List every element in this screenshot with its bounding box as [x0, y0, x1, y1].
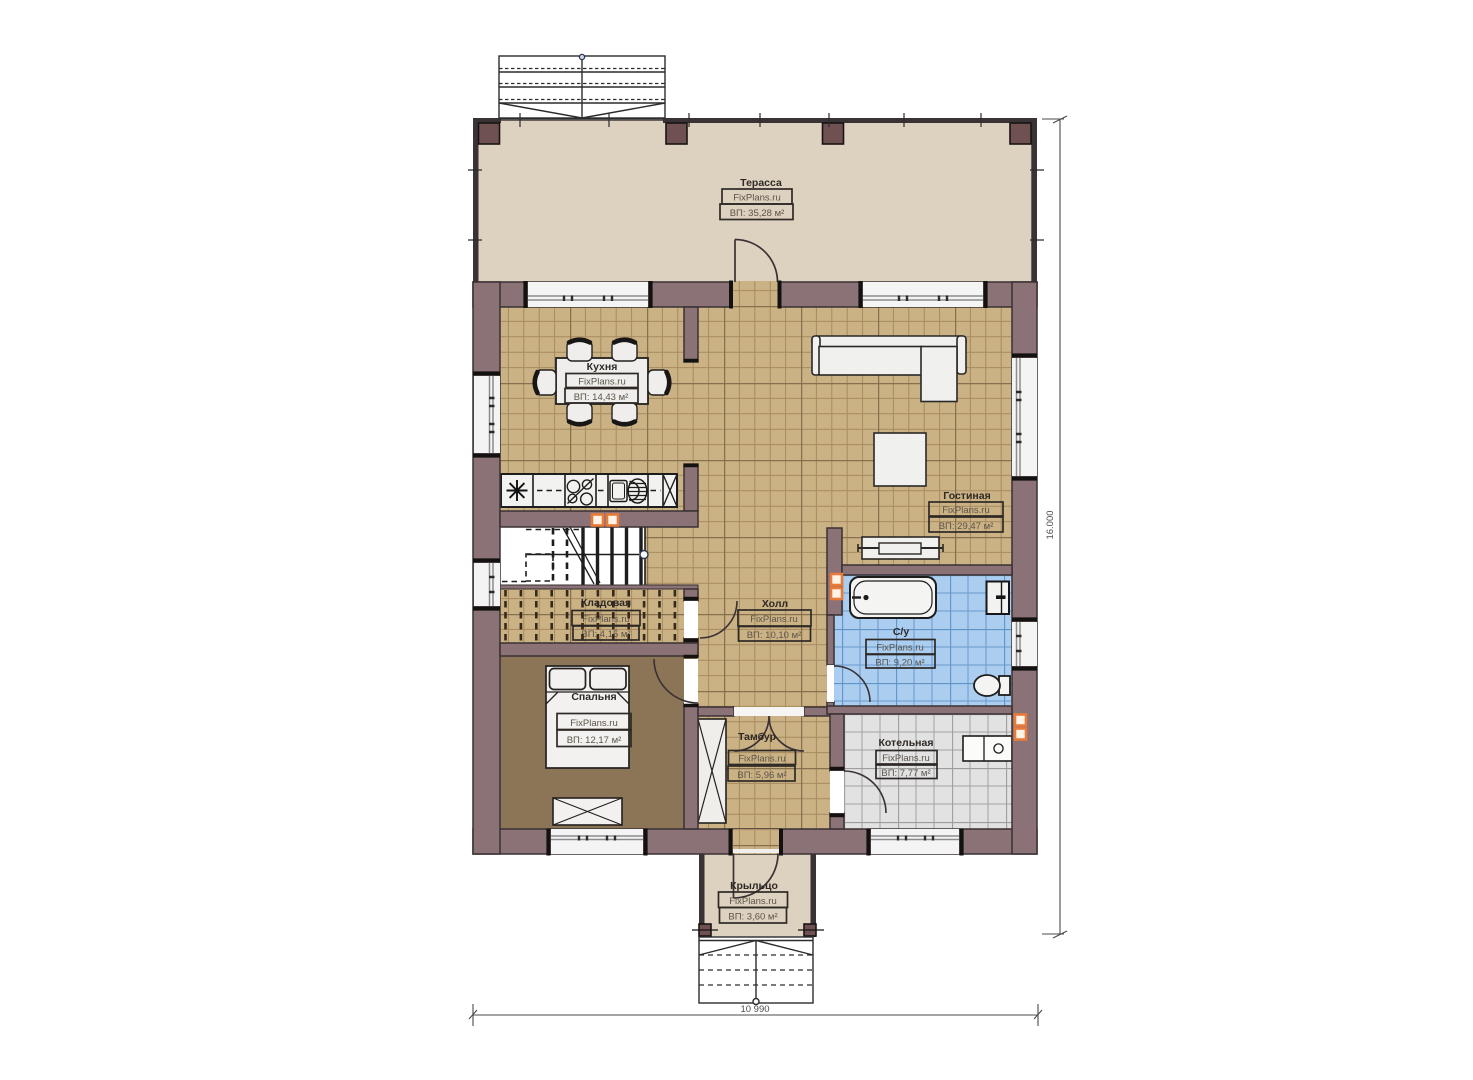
svg-text:Терасса: Терасса: [740, 177, 782, 189]
svg-text:ВП: 14,43 м²: ВП: 14,43 м²: [574, 392, 629, 403]
svg-text:FixPlans.ru: FixPlans.ru: [570, 718, 618, 729]
svg-text:Кладовая: Кладовая: [581, 597, 631, 609]
svg-text:ВП: 12,17 м²: ВП: 12,17 м²: [567, 735, 622, 746]
svg-text:FixPlans.ru: FixPlans.ru: [582, 614, 630, 625]
svg-text:Тамбур: Тамбур: [738, 731, 776, 743]
svg-text:16.000: 16.000: [1045, 510, 1056, 539]
svg-text:Спальня: Спальня: [571, 691, 616, 703]
svg-text:FixPlans.ru: FixPlans.ru: [750, 614, 798, 625]
svg-text:ВП: 10,10 м²: ВП: 10,10 м²: [747, 630, 802, 641]
svg-text:FixPlans.ru: FixPlans.ru: [882, 753, 930, 764]
svg-text:ВП: 5,96 м²: ВП: 5,96 м²: [737, 770, 786, 781]
svg-text:ВП: 4,15 м²: ВП: 4,15 м²: [581, 629, 630, 640]
svg-text:FixPlans.ru: FixPlans.ru: [729, 896, 777, 907]
svg-text:Холл: Холл: [762, 598, 788, 610]
svg-text:FixPlans.ru: FixPlans.ru: [738, 754, 786, 765]
svg-text:Крыльцо: Крыльцо: [730, 880, 778, 892]
svg-text:FixPlans.ru: FixPlans.ru: [876, 643, 924, 654]
svg-text:Гостиная: Гостиная: [943, 490, 990, 502]
svg-text:ВП: 7,77 м²: ВП: 7,77 м²: [881, 768, 930, 779]
svg-text:FixPlans.ru: FixPlans.ru: [578, 377, 626, 388]
svg-text:ВП: 9,20 м²: ВП: 9,20 м²: [875, 658, 924, 669]
svg-text:FixPlans.ru: FixPlans.ru: [733, 193, 781, 204]
svg-text:FixPlans.ru: FixPlans.ru: [942, 505, 990, 516]
svg-text:ВП: 29,47 м²: ВП: 29,47 м²: [939, 521, 994, 532]
svg-text:ВП: 3,60 м²: ВП: 3,60 м²: [728, 912, 777, 923]
svg-text:Кухня: Кухня: [587, 361, 618, 373]
svg-text:ВП: 35,28 м²: ВП: 35,28 м²: [730, 208, 785, 219]
svg-text:10 990: 10 990: [740, 1004, 769, 1015]
svg-text:С/у: С/у: [893, 626, 910, 638]
svg-text:Котельная: Котельная: [879, 737, 934, 749]
